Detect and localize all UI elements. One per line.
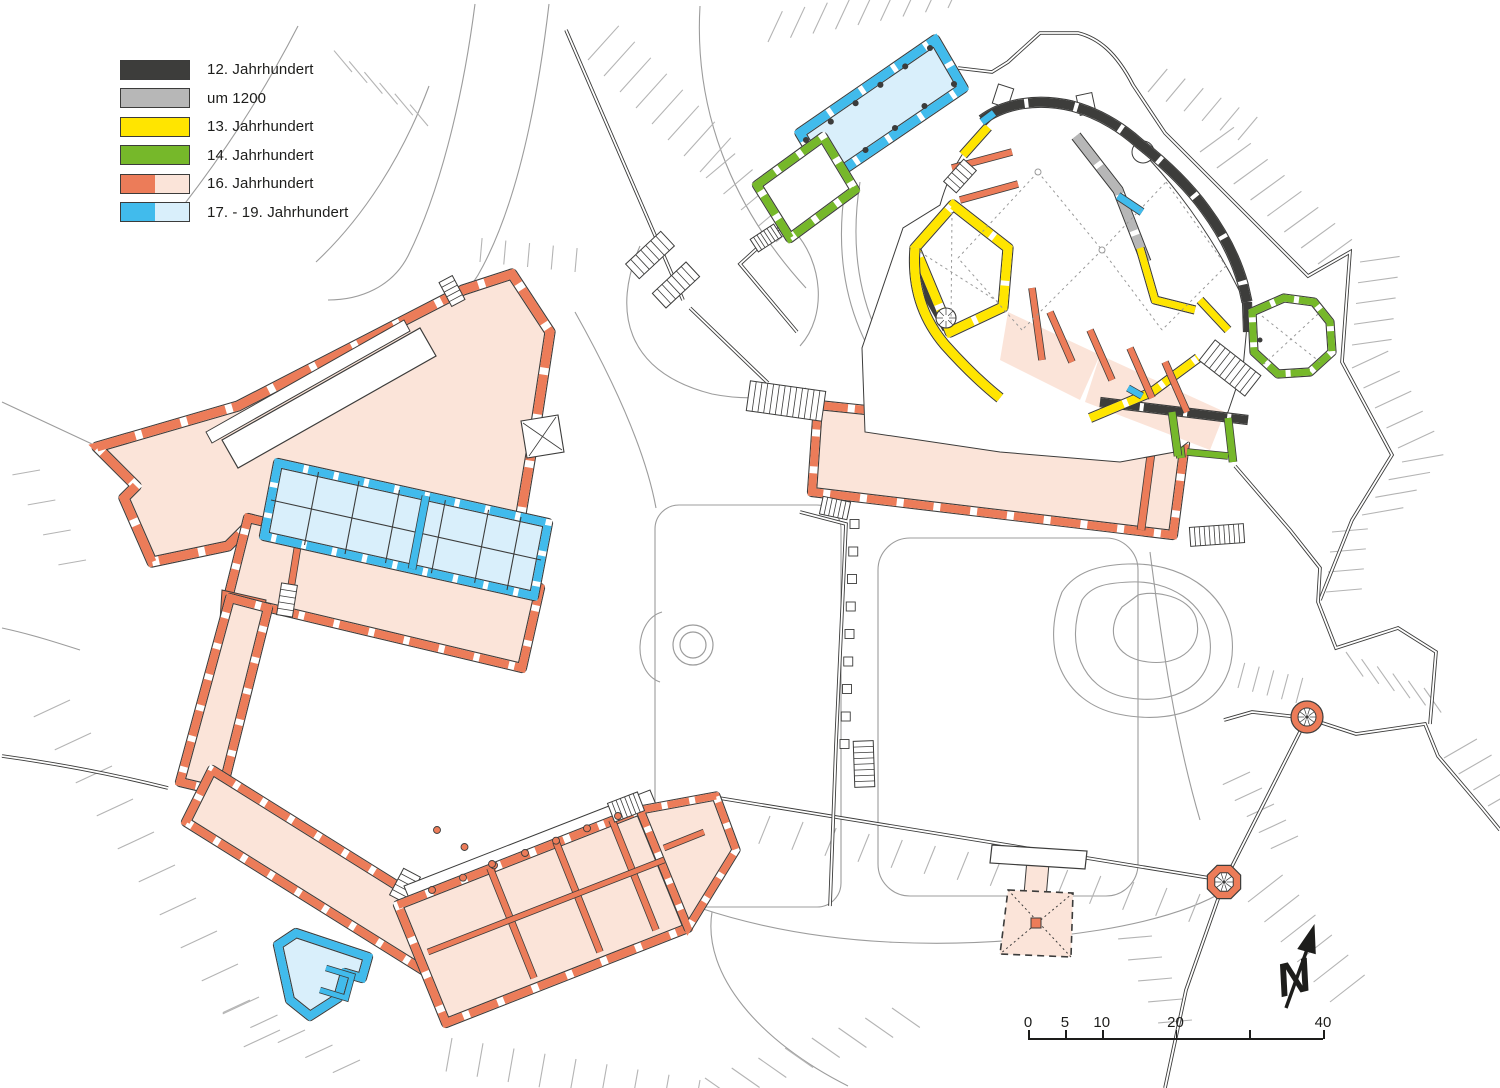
stairs <box>626 231 675 278</box>
stairs <box>746 381 825 421</box>
legend-swatch <box>120 60 190 80</box>
legend-item: 17. - 19. Jahrhundert <box>120 202 348 223</box>
legend-item: um 1200 <box>120 88 348 109</box>
legend-swatch <box>120 88 190 108</box>
legend-item: 13. Jahrhundert <box>120 116 348 137</box>
scale-bar-tick <box>1176 1030 1178 1039</box>
legend-item-label: 12. Jahrhundert <box>207 61 314 78</box>
scale-bar-label: 20 <box>1167 1014 1184 1031</box>
scale-bar-label: 10 <box>1093 1014 1110 1031</box>
legend-swatch <box>120 145 190 165</box>
scale-bar-tick <box>1065 1030 1067 1039</box>
legend: 12. Jahrhundert um 1200 13. Jahrhundert … <box>120 59 348 223</box>
scale-bar-tick <box>1028 1030 1030 1039</box>
legend-swatch <box>120 202 190 222</box>
legend-item-label: um 1200 <box>207 90 266 107</box>
legend-item-label: 16. Jahrhundert <box>207 175 314 192</box>
scale-bar-label: 0 <box>1024 1014 1032 1031</box>
stairs <box>1189 524 1244 547</box>
legend-swatch <box>120 174 190 194</box>
scale-bar-tick <box>1102 1030 1104 1039</box>
scale-bar-label: 5 <box>1061 1014 1069 1031</box>
towers-layer <box>990 701 1323 957</box>
scale-bar-tick <box>1249 1030 1251 1039</box>
stairs <box>853 741 875 788</box>
site-plan-page: N 12. Jahrhundert um 1200 13. Jahrhunder… <box>0 0 1500 1088</box>
north-indicator: N <box>1270 929 1317 1008</box>
north-label: N <box>1270 947 1317 1007</box>
scale-bar-tick <box>1323 1030 1325 1039</box>
core-castle <box>862 84 1332 462</box>
legend-item-label: 17. - 19. Jahrhundert <box>207 204 348 221</box>
legend-item: 16. Jahrhundert <box>120 173 348 194</box>
legend-item: 14. Jahrhundert <box>120 145 348 166</box>
legend-item: 12. Jahrhundert <box>120 59 348 80</box>
legend-item-label: 13. Jahrhundert <box>207 118 314 135</box>
legend-swatch <box>120 117 190 137</box>
legend-item-label: 14. Jahrhundert <box>207 147 314 164</box>
scale-bar-label: 40 <box>1315 1014 1332 1031</box>
scale-bar: 05102040 <box>1028 1014 1368 1044</box>
stairs <box>652 262 699 308</box>
